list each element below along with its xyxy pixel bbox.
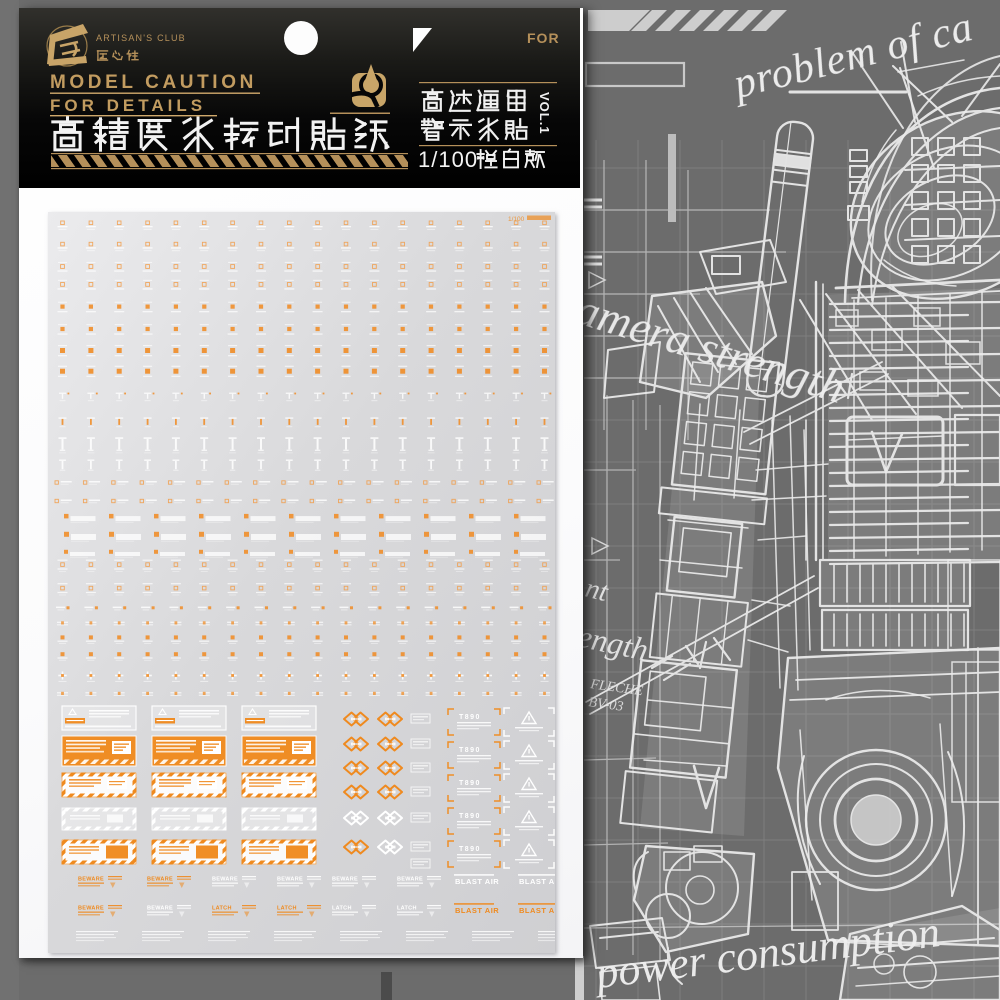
- svg-text:BEWARE: BEWARE: [147, 877, 173, 883]
- svg-text:BLAST AIR: BLAST AIR: [455, 906, 499, 915]
- svg-text:MODEL CAUTION: MODEL CAUTION: [50, 72, 257, 93]
- svg-text:BEWARE: BEWARE: [78, 877, 104, 883]
- svg-text:T890: T890: [459, 846, 481, 853]
- svg-text:LATCH: LATCH: [277, 906, 297, 912]
- svg-text:FOR: FOR: [527, 30, 560, 46]
- svg-text:BLAST AIR: BLAST AIR: [455, 877, 499, 886]
- svg-text:ARTISAN'S CLUB: ARTISAN'S CLUB: [96, 33, 186, 43]
- svg-text:BEWARE: BEWARE: [147, 906, 173, 912]
- svg-text:T890: T890: [459, 747, 481, 754]
- svg-text:LATCH: LATCH: [212, 906, 232, 912]
- svg-text:T890: T890: [459, 813, 481, 820]
- svg-text:LATCH: LATCH: [332, 906, 352, 912]
- svg-text:BEWARE: BEWARE: [332, 877, 358, 883]
- svg-text:FOR DETAILS: FOR DETAILS: [50, 96, 206, 115]
- svg-text:VOL.1: VOL.1: [537, 92, 552, 135]
- svg-text:1/100: 1/100: [508, 216, 525, 223]
- svg-text:BEWARE: BEWARE: [78, 906, 104, 912]
- svg-text:BEWARE: BEWARE: [397, 877, 423, 883]
- svg-text:LATCH: LATCH: [397, 906, 417, 912]
- svg-text:T890: T890: [459, 780, 481, 787]
- svg-text:BLAST AIR: BLAST AIR: [519, 906, 555, 915]
- svg-text:1/100: 1/100: [418, 147, 478, 172]
- svg-text:BEWARE: BEWARE: [212, 877, 238, 883]
- svg-text:T890: T890: [459, 714, 481, 721]
- svg-text:BLAST AIR: BLAST AIR: [519, 877, 555, 886]
- svg-text:BEWARE: BEWARE: [277, 877, 303, 883]
